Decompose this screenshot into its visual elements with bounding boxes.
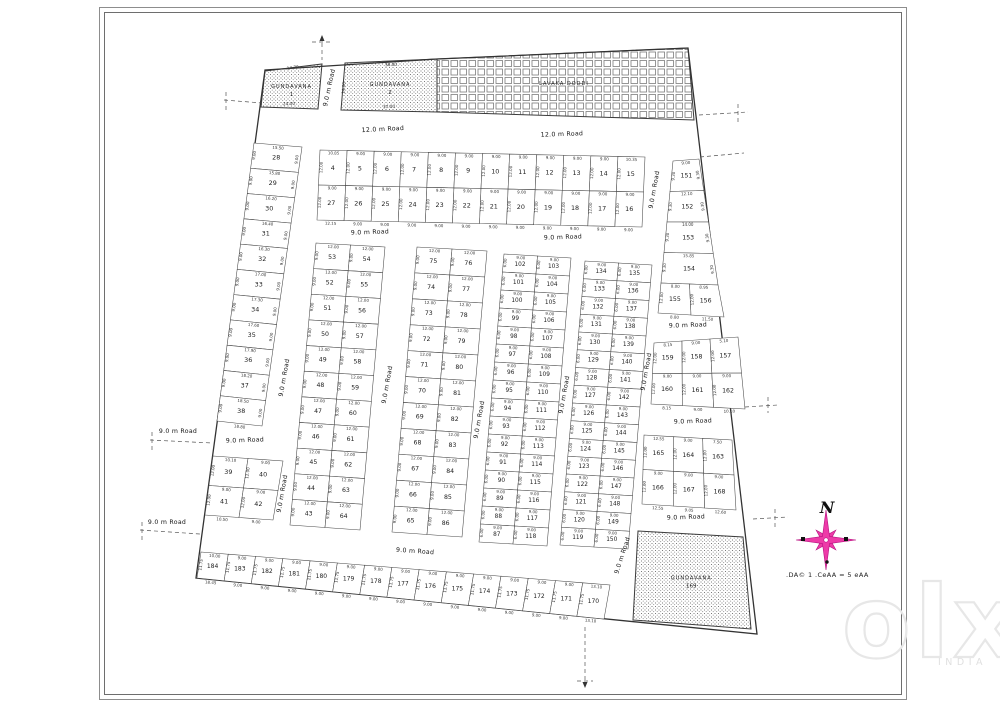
plot-98-number: 98 xyxy=(510,334,518,340)
svg-text:9.00: 9.00 xyxy=(694,407,703,412)
svg-text:9.00: 9.00 xyxy=(505,610,515,616)
svg-text:9.00: 9.00 xyxy=(574,528,584,534)
plot-163-number: 163 xyxy=(712,454,724,461)
svg-text:9.00: 9.00 xyxy=(292,481,298,491)
plot-38-number: 38 xyxy=(237,407,245,415)
plot-46-number: 46 xyxy=(312,433,320,440)
plot-166-number: 166 xyxy=(652,485,664,492)
svg-text:9.00: 9.00 xyxy=(299,404,305,414)
svg-text:9.00: 9.00 xyxy=(527,527,537,533)
svg-text:9.00: 9.00 xyxy=(544,190,553,195)
plot-105-number: 105 xyxy=(545,300,556,306)
plot-18-number: 18 xyxy=(571,204,579,212)
svg-text:12.00: 12.00 xyxy=(703,484,708,496)
svg-text:9.00: 9.00 xyxy=(714,474,724,480)
svg-text:6.00: 6.00 xyxy=(563,495,569,505)
svg-text:12.00: 12.00 xyxy=(339,503,351,509)
block-87-118: 1029.006.001039.006.001019.006.001049.00… xyxy=(479,254,571,546)
svg-text:6.00: 6.00 xyxy=(488,420,494,430)
svg-text:9.00: 9.00 xyxy=(597,227,606,232)
north-letter: N xyxy=(820,498,835,517)
plot-180-number: 180 xyxy=(316,573,328,580)
svg-text:12.00: 12.00 xyxy=(348,400,360,406)
svg-text:9.00: 9.00 xyxy=(332,432,338,442)
svg-text:9.00: 9.00 xyxy=(408,332,414,342)
svg-text:9.00: 9.00 xyxy=(428,571,438,577)
area-gundavana-1: GUNDAVANA114.7024.00 xyxy=(261,64,322,109)
svg-text:12.00: 12.00 xyxy=(408,481,420,487)
svg-text:9.00: 9.00 xyxy=(619,406,629,412)
svg-text:9.00: 9.00 xyxy=(346,564,356,570)
svg-text:9.30: 9.30 xyxy=(661,262,667,272)
svg-text:6.00: 6.00 xyxy=(486,438,492,448)
svg-text:12.00: 12.00 xyxy=(346,426,358,432)
plot-39-number: 39 xyxy=(224,468,232,476)
svg-text:6.00: 6.00 xyxy=(598,480,604,490)
svg-text:6.00: 6.00 xyxy=(526,368,532,378)
plot-183-number: 183 xyxy=(234,566,246,573)
svg-text:15.50: 15.50 xyxy=(272,145,284,151)
plot-125-number: 125 xyxy=(582,429,593,435)
svg-text:9.00: 9.00 xyxy=(297,430,303,440)
svg-text:9.00: 9.00 xyxy=(628,299,638,305)
svg-text:6.00: 6.00 xyxy=(479,528,485,538)
area-gundavana-169-number: 169 xyxy=(686,583,697,589)
svg-text:9.00: 9.00 xyxy=(625,192,634,197)
svg-text:12.00: 12.00 xyxy=(479,200,485,212)
plot-152-number: 152 xyxy=(681,204,693,211)
plot-106-number: 106 xyxy=(543,318,554,324)
svg-text:9.00: 9.00 xyxy=(445,309,451,319)
svg-text:9.00: 9.00 xyxy=(544,329,554,335)
plot-72-number: 72 xyxy=(423,336,431,343)
svg-text:9.00: 9.00 xyxy=(434,438,440,448)
road-label-2: 9.0 m Road xyxy=(322,68,337,107)
svg-text:9.00: 9.00 xyxy=(496,489,506,495)
plot-73-number: 73 xyxy=(425,310,433,317)
plot-103-number: 103 xyxy=(548,264,559,270)
svg-text:9.00: 9.00 xyxy=(483,575,493,581)
svg-text:9.00: 9.00 xyxy=(383,152,392,157)
plot-138-number: 138 xyxy=(624,324,635,330)
svg-text:12.00: 12.00 xyxy=(325,270,337,276)
svg-text:9.00: 9.00 xyxy=(401,568,411,574)
plot-37-number: 37 xyxy=(241,382,249,390)
plot-111-number: 111 xyxy=(536,408,547,414)
plot-7-number: 7 xyxy=(412,166,416,174)
svg-text:15.80: 15.80 xyxy=(269,170,281,176)
svg-text:9.00: 9.00 xyxy=(547,293,557,299)
svg-text:12.00: 12.00 xyxy=(341,477,353,483)
svg-text:9.00: 9.00 xyxy=(407,222,416,227)
svg-text:9.00: 9.00 xyxy=(519,154,528,159)
plot-57-number: 57 xyxy=(356,333,364,340)
svg-text:12.55: 12.55 xyxy=(653,436,665,442)
area-gundavana-169-label: GUNDAVANA xyxy=(671,575,712,581)
svg-text:9.00: 9.00 xyxy=(260,585,270,591)
plot-120-number: 120 xyxy=(574,517,585,523)
svg-text:9.00: 9.00 xyxy=(545,311,555,317)
svg-text:9.00: 9.00 xyxy=(450,604,460,610)
svg-text:9.00: 9.00 xyxy=(504,399,514,405)
svg-text:9.00: 9.00 xyxy=(392,514,398,524)
svg-text:6.00: 6.00 xyxy=(497,312,503,322)
plot-66-number: 66 xyxy=(409,491,417,498)
area-gundavana-2-label: GUNDAVANA xyxy=(370,82,411,88)
svg-text:9.00: 9.00 xyxy=(543,225,552,230)
plot-109-number: 109 xyxy=(539,372,550,378)
svg-text:12.00: 12.00 xyxy=(681,351,686,363)
svg-text:9.00: 9.00 xyxy=(570,226,579,231)
svg-text:12.00: 12.00 xyxy=(304,500,316,506)
svg-text:8.00: 8.00 xyxy=(671,284,681,289)
plot-112-number: 112 xyxy=(534,426,545,432)
svg-text:6.00: 6.00 xyxy=(595,515,601,525)
svg-text:9.05: 9.05 xyxy=(684,507,694,513)
svg-text:9.00: 9.00 xyxy=(344,304,350,314)
svg-text:9.00: 9.00 xyxy=(434,223,443,228)
svg-text:16.40: 16.40 xyxy=(262,221,274,227)
svg-text:9.00: 9.00 xyxy=(436,188,445,193)
svg-text:9.00: 9.00 xyxy=(304,353,310,363)
area-gundavana-169: GUNDAVANA169 xyxy=(633,531,751,629)
plot-184-number: 184 xyxy=(207,563,219,570)
svg-text:9.00: 9.00 xyxy=(410,152,419,157)
svg-text:9.00: 9.00 xyxy=(222,487,232,493)
plot-113-number: 113 xyxy=(533,444,544,450)
plot-41-number: 41 xyxy=(220,498,228,506)
plot-70-number: 70 xyxy=(418,388,426,395)
svg-text:9.00: 9.00 xyxy=(608,530,618,536)
svg-text:9.00: 9.00 xyxy=(432,464,438,474)
svg-text:9.00: 9.00 xyxy=(237,555,247,561)
plot-150-number: 150 xyxy=(606,537,617,543)
svg-text:13.10: 13.10 xyxy=(585,618,597,624)
plot-88-number: 88 xyxy=(495,514,503,520)
svg-text:12.00: 12.00 xyxy=(712,384,718,396)
plot-133-number: 133 xyxy=(594,287,605,293)
plot-81-number: 81 xyxy=(453,390,461,397)
svg-text:12.00: 12.00 xyxy=(562,166,568,178)
svg-text:9.00: 9.00 xyxy=(463,188,472,193)
svg-text:9.00: 9.00 xyxy=(447,283,453,293)
svg-text:9.00: 9.00 xyxy=(464,153,473,158)
svg-text:9.00: 9.00 xyxy=(348,253,354,263)
svg-text:9.00: 9.00 xyxy=(537,579,547,585)
svg-text:9.00: 9.00 xyxy=(302,379,308,389)
svg-text:12.00: 12.00 xyxy=(316,372,328,378)
svg-text:12.00: 12.00 xyxy=(350,374,362,380)
svg-text:9.00: 9.00 xyxy=(579,475,589,481)
svg-text:12.00: 12.00 xyxy=(353,349,365,355)
svg-text:9.00: 9.00 xyxy=(319,562,329,568)
svg-text:9.00: 9.00 xyxy=(495,507,505,513)
plot-58-number: 58 xyxy=(353,359,361,366)
svg-text:9.00: 9.00 xyxy=(629,282,639,288)
plot-129-number: 129 xyxy=(588,358,599,364)
svg-text:37.00: 37.00 xyxy=(383,104,395,109)
svg-text:12.00: 12.00 xyxy=(689,293,695,305)
plot-114-number: 114 xyxy=(531,462,542,468)
plot-116-number: 116 xyxy=(528,498,539,504)
plot-165-number: 165 xyxy=(653,450,665,457)
svg-text:9.00: 9.00 xyxy=(477,607,487,613)
svg-text:12.00: 12.00 xyxy=(642,480,647,492)
svg-text:8.15: 8.15 xyxy=(662,405,671,410)
svg-text:9.00: 9.00 xyxy=(356,151,365,156)
svg-text:9.00: 9.00 xyxy=(265,557,275,563)
plot-40-number: 40 xyxy=(259,471,267,479)
svg-text:12.15: 12.15 xyxy=(325,221,337,226)
svg-text:9.00: 9.00 xyxy=(423,601,433,607)
plot-11-number: 11 xyxy=(518,168,526,176)
svg-text:9.00: 9.00 xyxy=(256,489,266,495)
svg-text:6.00: 6.00 xyxy=(609,355,615,365)
plot-143-number: 143 xyxy=(617,413,628,419)
plot-20-number: 20 xyxy=(517,203,525,211)
svg-text:12.00: 12.00 xyxy=(616,168,622,180)
svg-text:9.00: 9.00 xyxy=(325,509,331,519)
block-155-156: 1558.0012.008.801568.9512.0011.50 xyxy=(658,283,724,322)
svg-text:9.00: 9.00 xyxy=(328,185,337,190)
plot-97-number: 97 xyxy=(509,352,517,358)
area-lavaka-doddi: LAVAKA DODDI xyxy=(437,48,694,120)
svg-text:12.00: 12.00 xyxy=(429,248,441,254)
svg-text:14.00: 14.00 xyxy=(682,222,694,227)
svg-text:6.00: 6.00 xyxy=(577,336,583,346)
svg-text:12.00: 12.00 xyxy=(643,446,648,458)
svg-text:12.00: 12.00 xyxy=(426,274,438,280)
svg-text:12.00: 12.00 xyxy=(560,201,566,213)
svg-text:12.00: 12.00 xyxy=(710,350,716,362)
svg-text:6.00: 6.00 xyxy=(600,462,606,472)
svg-text:12.00: 12.00 xyxy=(422,326,434,332)
svg-text:10.85: 10.85 xyxy=(328,150,340,155)
svg-text:9.00: 9.00 xyxy=(334,407,340,417)
area-lavaka-doddi-label: LAVAKA DODDI xyxy=(539,81,589,87)
svg-text:9.00: 9.00 xyxy=(493,525,503,531)
svg-text:9.00: 9.00 xyxy=(403,384,409,394)
plot-123-number: 123 xyxy=(578,464,589,470)
svg-text:9.00: 9.00 xyxy=(456,573,466,579)
svg-text:10.10: 10.10 xyxy=(225,457,237,463)
svg-text:12.00: 12.00 xyxy=(309,449,321,455)
svg-text:10.50: 10.50 xyxy=(216,516,228,522)
olx-region-text: INDIA xyxy=(938,657,987,668)
svg-text:6.00: 6.00 xyxy=(561,513,567,523)
plot-77-number: 77 xyxy=(462,286,470,293)
svg-text:6.00: 6.00 xyxy=(529,332,535,342)
svg-text:6.00: 6.00 xyxy=(480,510,486,520)
svg-text:9.00: 9.00 xyxy=(341,330,347,340)
svg-text:12.00: 12.00 xyxy=(411,455,423,461)
plot-30-number: 30 xyxy=(265,204,273,212)
plot-139-number: 139 xyxy=(623,342,634,348)
svg-text:12.00: 12.00 xyxy=(406,507,418,513)
svg-text:9.00: 9.00 xyxy=(337,381,343,391)
plot-134-number: 134 xyxy=(595,269,606,275)
svg-text:12.00: 12.00 xyxy=(452,199,458,211)
svg-text:6.00: 6.00 xyxy=(485,456,491,466)
north-compass xyxy=(796,510,856,570)
svg-text:9.00: 9.00 xyxy=(586,386,596,392)
plot-118-number: 118 xyxy=(525,534,536,540)
road-label-0: 12.0 m Road xyxy=(361,125,404,134)
road-label-1: 12.0 m Road xyxy=(541,130,584,138)
svg-text:6.00: 6.00 xyxy=(502,258,508,268)
svg-text:12.00: 12.00 xyxy=(313,398,325,404)
svg-text:8.80: 8.80 xyxy=(670,314,680,319)
plot-121-number: 121 xyxy=(575,500,586,506)
plot-80-number: 80 xyxy=(455,364,463,371)
plot-104-number: 104 xyxy=(546,282,557,288)
svg-text:6.00: 6.00 xyxy=(516,494,522,504)
svg-text:9.00: 9.00 xyxy=(512,309,522,315)
plot-63-number: 63 xyxy=(342,487,350,494)
svg-text:6.00: 6.00 xyxy=(564,478,570,488)
plot-12-number: 12 xyxy=(545,168,553,176)
plot-131-number: 131 xyxy=(591,322,602,328)
svg-text:6.00: 6.00 xyxy=(569,424,575,434)
svg-text:12.00: 12.00 xyxy=(455,354,467,360)
svg-text:9.00: 9.00 xyxy=(443,335,449,345)
road-label-5: 9.0 m Road xyxy=(648,170,662,209)
plot-85-number: 85 xyxy=(444,494,452,501)
plot-142-number: 142 xyxy=(618,395,629,401)
svg-text:6.00: 6.00 xyxy=(574,371,580,381)
block-157-162: 1598.1512.001589.0012.001575.1012.001609… xyxy=(651,337,745,414)
plot-173-number: 173 xyxy=(506,590,518,597)
plot-170-number: 170 xyxy=(588,598,600,605)
plot-107-number: 107 xyxy=(542,336,553,342)
svg-text:9.00: 9.00 xyxy=(620,388,630,394)
plot-43-number: 43 xyxy=(305,510,313,517)
svg-text:9.00: 9.00 xyxy=(507,363,517,369)
svg-text:9.00: 9.00 xyxy=(436,412,442,422)
area-gundavana-2: GUNDAVANA236.0037.0014.00 xyxy=(340,59,437,112)
road-label-17: 9.0 m Road xyxy=(159,428,197,435)
svg-text:12.00: 12.00 xyxy=(533,201,539,213)
plot-56-number: 56 xyxy=(358,307,366,314)
plot-148-number: 148 xyxy=(609,502,620,508)
svg-text:12.00: 12.00 xyxy=(355,323,367,329)
svg-text:9.00: 9.00 xyxy=(382,187,391,192)
plot-162-number: 162 xyxy=(722,388,734,395)
plot-171-number: 171 xyxy=(560,595,572,602)
svg-text:9.00: 9.00 xyxy=(517,189,526,194)
plot-137-number: 137 xyxy=(626,306,637,312)
plot-127-number: 127 xyxy=(585,393,596,399)
svg-text:12.10: 12.10 xyxy=(681,191,693,196)
plot-34-number: 34 xyxy=(251,306,259,314)
svg-text:12.00: 12.00 xyxy=(441,510,453,516)
svg-text:5.10: 5.10 xyxy=(719,338,729,344)
svg-text:9.00: 9.00 xyxy=(538,401,548,407)
plot-172-number: 172 xyxy=(533,593,545,600)
road-label-9: 9.0 m Road xyxy=(473,400,487,439)
road-label-14: 9.0 m Road xyxy=(674,417,713,425)
block-4-27: 410.8512.0059.0012.0069.0012.0079.0012.0… xyxy=(317,150,645,232)
plot-61-number: 61 xyxy=(347,436,355,443)
svg-text:9.00: 9.00 xyxy=(613,477,623,483)
svg-text:6.00: 6.00 xyxy=(531,314,537,324)
svg-text:12.00: 12.00 xyxy=(327,244,339,250)
plot-141-number: 141 xyxy=(620,377,631,383)
svg-text:6.00: 6.00 xyxy=(578,318,584,328)
svg-text:6.00: 6.00 xyxy=(514,512,520,522)
area-gundavana-1-number: 1 xyxy=(290,92,294,98)
svg-text:9.00: 9.00 xyxy=(631,264,641,270)
svg-text:6.00: 6.00 xyxy=(517,476,523,486)
svg-text:10.10: 10.10 xyxy=(724,409,736,414)
svg-text:9.00: 9.00 xyxy=(261,460,271,466)
svg-text:6.00: 6.00 xyxy=(490,402,496,412)
svg-text:9.00: 9.00 xyxy=(542,347,552,353)
plot-122-number: 122 xyxy=(577,482,588,488)
plot-94-number: 94 xyxy=(504,406,512,412)
plot-108-number: 108 xyxy=(540,354,551,360)
plot-47-number: 47 xyxy=(314,408,322,415)
plot-75-number: 75 xyxy=(429,258,437,265)
plot-4-number: 4 xyxy=(331,164,335,172)
plot-71-number: 71 xyxy=(420,362,428,369)
plot-84-number: 84 xyxy=(446,468,454,475)
north-arrow-label: N xyxy=(811,498,843,517)
plot-69-number: 69 xyxy=(416,414,424,421)
svg-text:12.00: 12.00 xyxy=(417,378,429,384)
svg-text:9.00: 9.00 xyxy=(499,453,509,459)
plot-89-number: 89 xyxy=(496,496,504,502)
plot-17-number: 17 xyxy=(598,205,606,213)
svg-text:12.00: 12.00 xyxy=(452,380,464,386)
plot-23-number: 23 xyxy=(436,201,444,209)
svg-text:6.00: 6.00 xyxy=(597,497,603,507)
plot-90-number: 90 xyxy=(498,478,506,484)
svg-text:9.00: 9.00 xyxy=(292,560,302,566)
plot-86-number: 86 xyxy=(442,520,450,527)
svg-text:12.00: 12.00 xyxy=(508,165,514,177)
svg-text:9.00: 9.00 xyxy=(600,156,609,161)
plot-179-number: 179 xyxy=(343,576,355,583)
plot-6-number: 6 xyxy=(385,165,389,173)
plot-68-number: 68 xyxy=(414,439,422,446)
plot-52-number: 52 xyxy=(326,279,334,286)
plot-95-number: 95 xyxy=(505,388,513,394)
svg-text:12.00: 12.00 xyxy=(420,352,432,358)
svg-text:6.00: 6.00 xyxy=(483,474,489,484)
svg-text:9.00: 9.00 xyxy=(311,276,317,286)
plot-176-number: 176 xyxy=(424,583,436,590)
road-label-6: 9.0 m Road xyxy=(278,358,292,397)
plot-168-number: 168 xyxy=(714,489,726,496)
svg-text:12.00: 12.00 xyxy=(345,162,351,174)
plot-126-number: 126 xyxy=(583,411,594,417)
svg-text:9.00: 9.00 xyxy=(399,436,405,446)
compass-south-dot xyxy=(825,560,828,563)
svg-text:9.00: 9.00 xyxy=(309,302,315,312)
svg-text:9.00: 9.00 xyxy=(492,154,501,159)
plot-178-number: 178 xyxy=(370,578,382,585)
svg-text:9.00: 9.00 xyxy=(401,410,407,420)
svg-text:9.00: 9.00 xyxy=(369,596,379,602)
plot-36-number: 36 xyxy=(244,356,252,364)
svg-text:9.00: 9.00 xyxy=(437,153,446,158)
svg-text:9.00: 9.00 xyxy=(546,155,555,160)
road-label-16: 9.0 m Road xyxy=(226,436,265,444)
svg-text:9.00: 9.00 xyxy=(490,189,499,194)
svg-text:9.00: 9.00 xyxy=(590,351,600,357)
plot-146-number: 146 xyxy=(612,466,623,472)
